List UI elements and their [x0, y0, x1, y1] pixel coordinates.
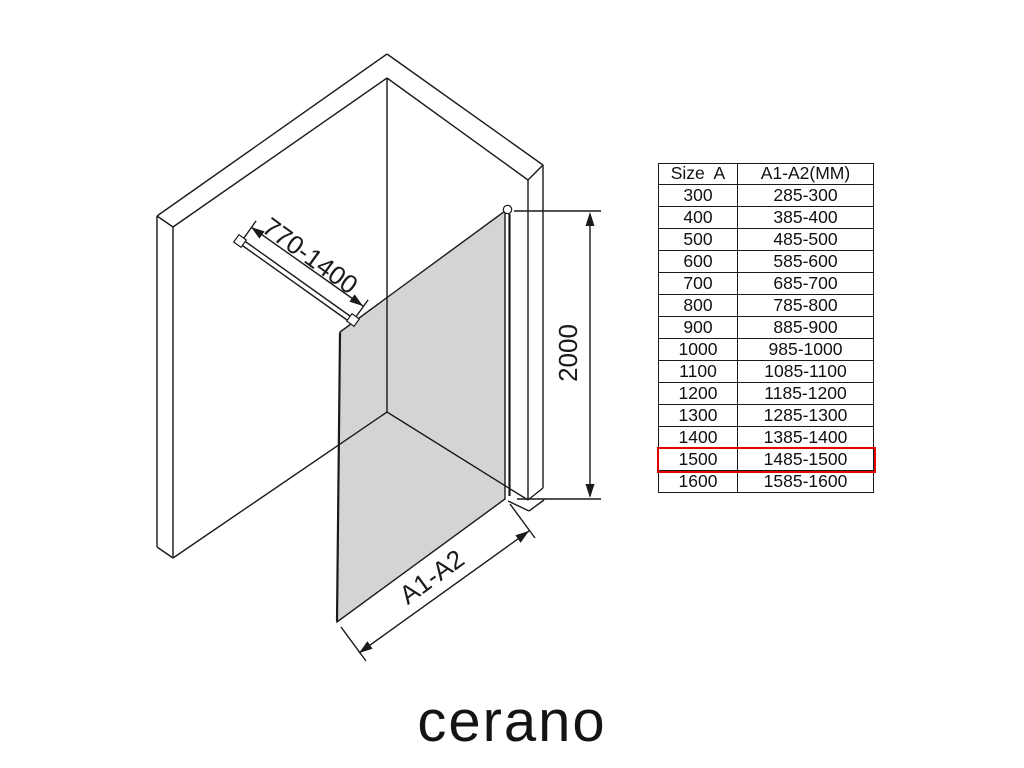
size-cell: 300: [659, 185, 738, 207]
size-table-row: 1100 1085-1100: [659, 361, 874, 383]
size-table-row: 1300 1285-1300: [659, 405, 874, 427]
range-cell: 685-700: [738, 273, 874, 295]
size-cell: 900: [659, 317, 738, 339]
range-column-header: A1-A2(MM): [738, 164, 874, 185]
size-table: Size A A1-A2(MM) 300 285-300 400 385-400…: [658, 163, 874, 493]
size-table-row: 400 385-400: [659, 207, 874, 229]
size-table-header-row: Size A A1-A2(MM): [659, 164, 874, 185]
size-table-row: 900 885-900: [659, 317, 874, 339]
range-cell: 985-1000: [738, 339, 874, 361]
size-cell: 1400: [659, 427, 738, 449]
size-cell: 500: [659, 229, 738, 251]
size-table-row: 600 585-600: [659, 251, 874, 273]
size-table-row: 1000 985-1000: [659, 339, 874, 361]
size-cell: 400: [659, 207, 738, 229]
size-table-row: 700 685-700: [659, 273, 874, 295]
size-cell: 1000: [659, 339, 738, 361]
range-cell: 1385-1400: [738, 427, 874, 449]
range-cell: 1085-1100: [738, 361, 874, 383]
range-cell: 785-800: [738, 295, 874, 317]
height-dimension-label: 2000: [553, 324, 583, 382]
size-cell: 600: [659, 251, 738, 273]
size-cell: 700: [659, 273, 738, 295]
glass-panel: [337, 211, 505, 622]
dimension-support-bar: 770-1400: [244, 211, 368, 317]
size-cell: 800: [659, 295, 738, 317]
range-cell: 885-900: [738, 317, 874, 339]
size-table-row: 300 285-300: [659, 185, 874, 207]
range-cell: 1485-1500: [738, 449, 874, 471]
range-cell: 585-600: [738, 251, 874, 273]
range-cell: 1185-1200: [738, 383, 874, 405]
size-cell: 1600: [659, 471, 738, 493]
size-table-row: 1600 1585-1600: [659, 471, 874, 493]
size-table-row: 500 485-500: [659, 229, 874, 251]
range-cell: 285-300: [738, 185, 874, 207]
range-cell: 1585-1600: [738, 471, 874, 493]
dimension-height: 2000: [514, 211, 601, 499]
size-table-row: 800 785-800: [659, 295, 874, 317]
range-cell: 1285-1300: [738, 405, 874, 427]
range-cell: 385-400: [738, 207, 874, 229]
range-cell: 485-500: [738, 229, 874, 251]
support-bar-dimension-label: 770-1400: [257, 211, 364, 300]
top-mount-dot: [503, 205, 511, 213]
glass-pane: [337, 211, 505, 622]
size-cell: 1500: [659, 449, 738, 471]
size-cell: 1300: [659, 405, 738, 427]
size-cell: 1100: [659, 361, 738, 383]
size-table-row: 1400 1385-1400: [659, 427, 874, 449]
page: 770-1400 2000 A1-A2 Size A A1-A2(MM): [0, 0, 1024, 768]
brand-logo: cerano: [0, 688, 1024, 755]
size-cell: 1200: [659, 383, 738, 405]
size-table-row: 1500 1485-1500: [659, 449, 874, 471]
size-column-header: Size A: [659, 164, 738, 185]
size-table-row: 1200 1185-1200: [659, 383, 874, 405]
